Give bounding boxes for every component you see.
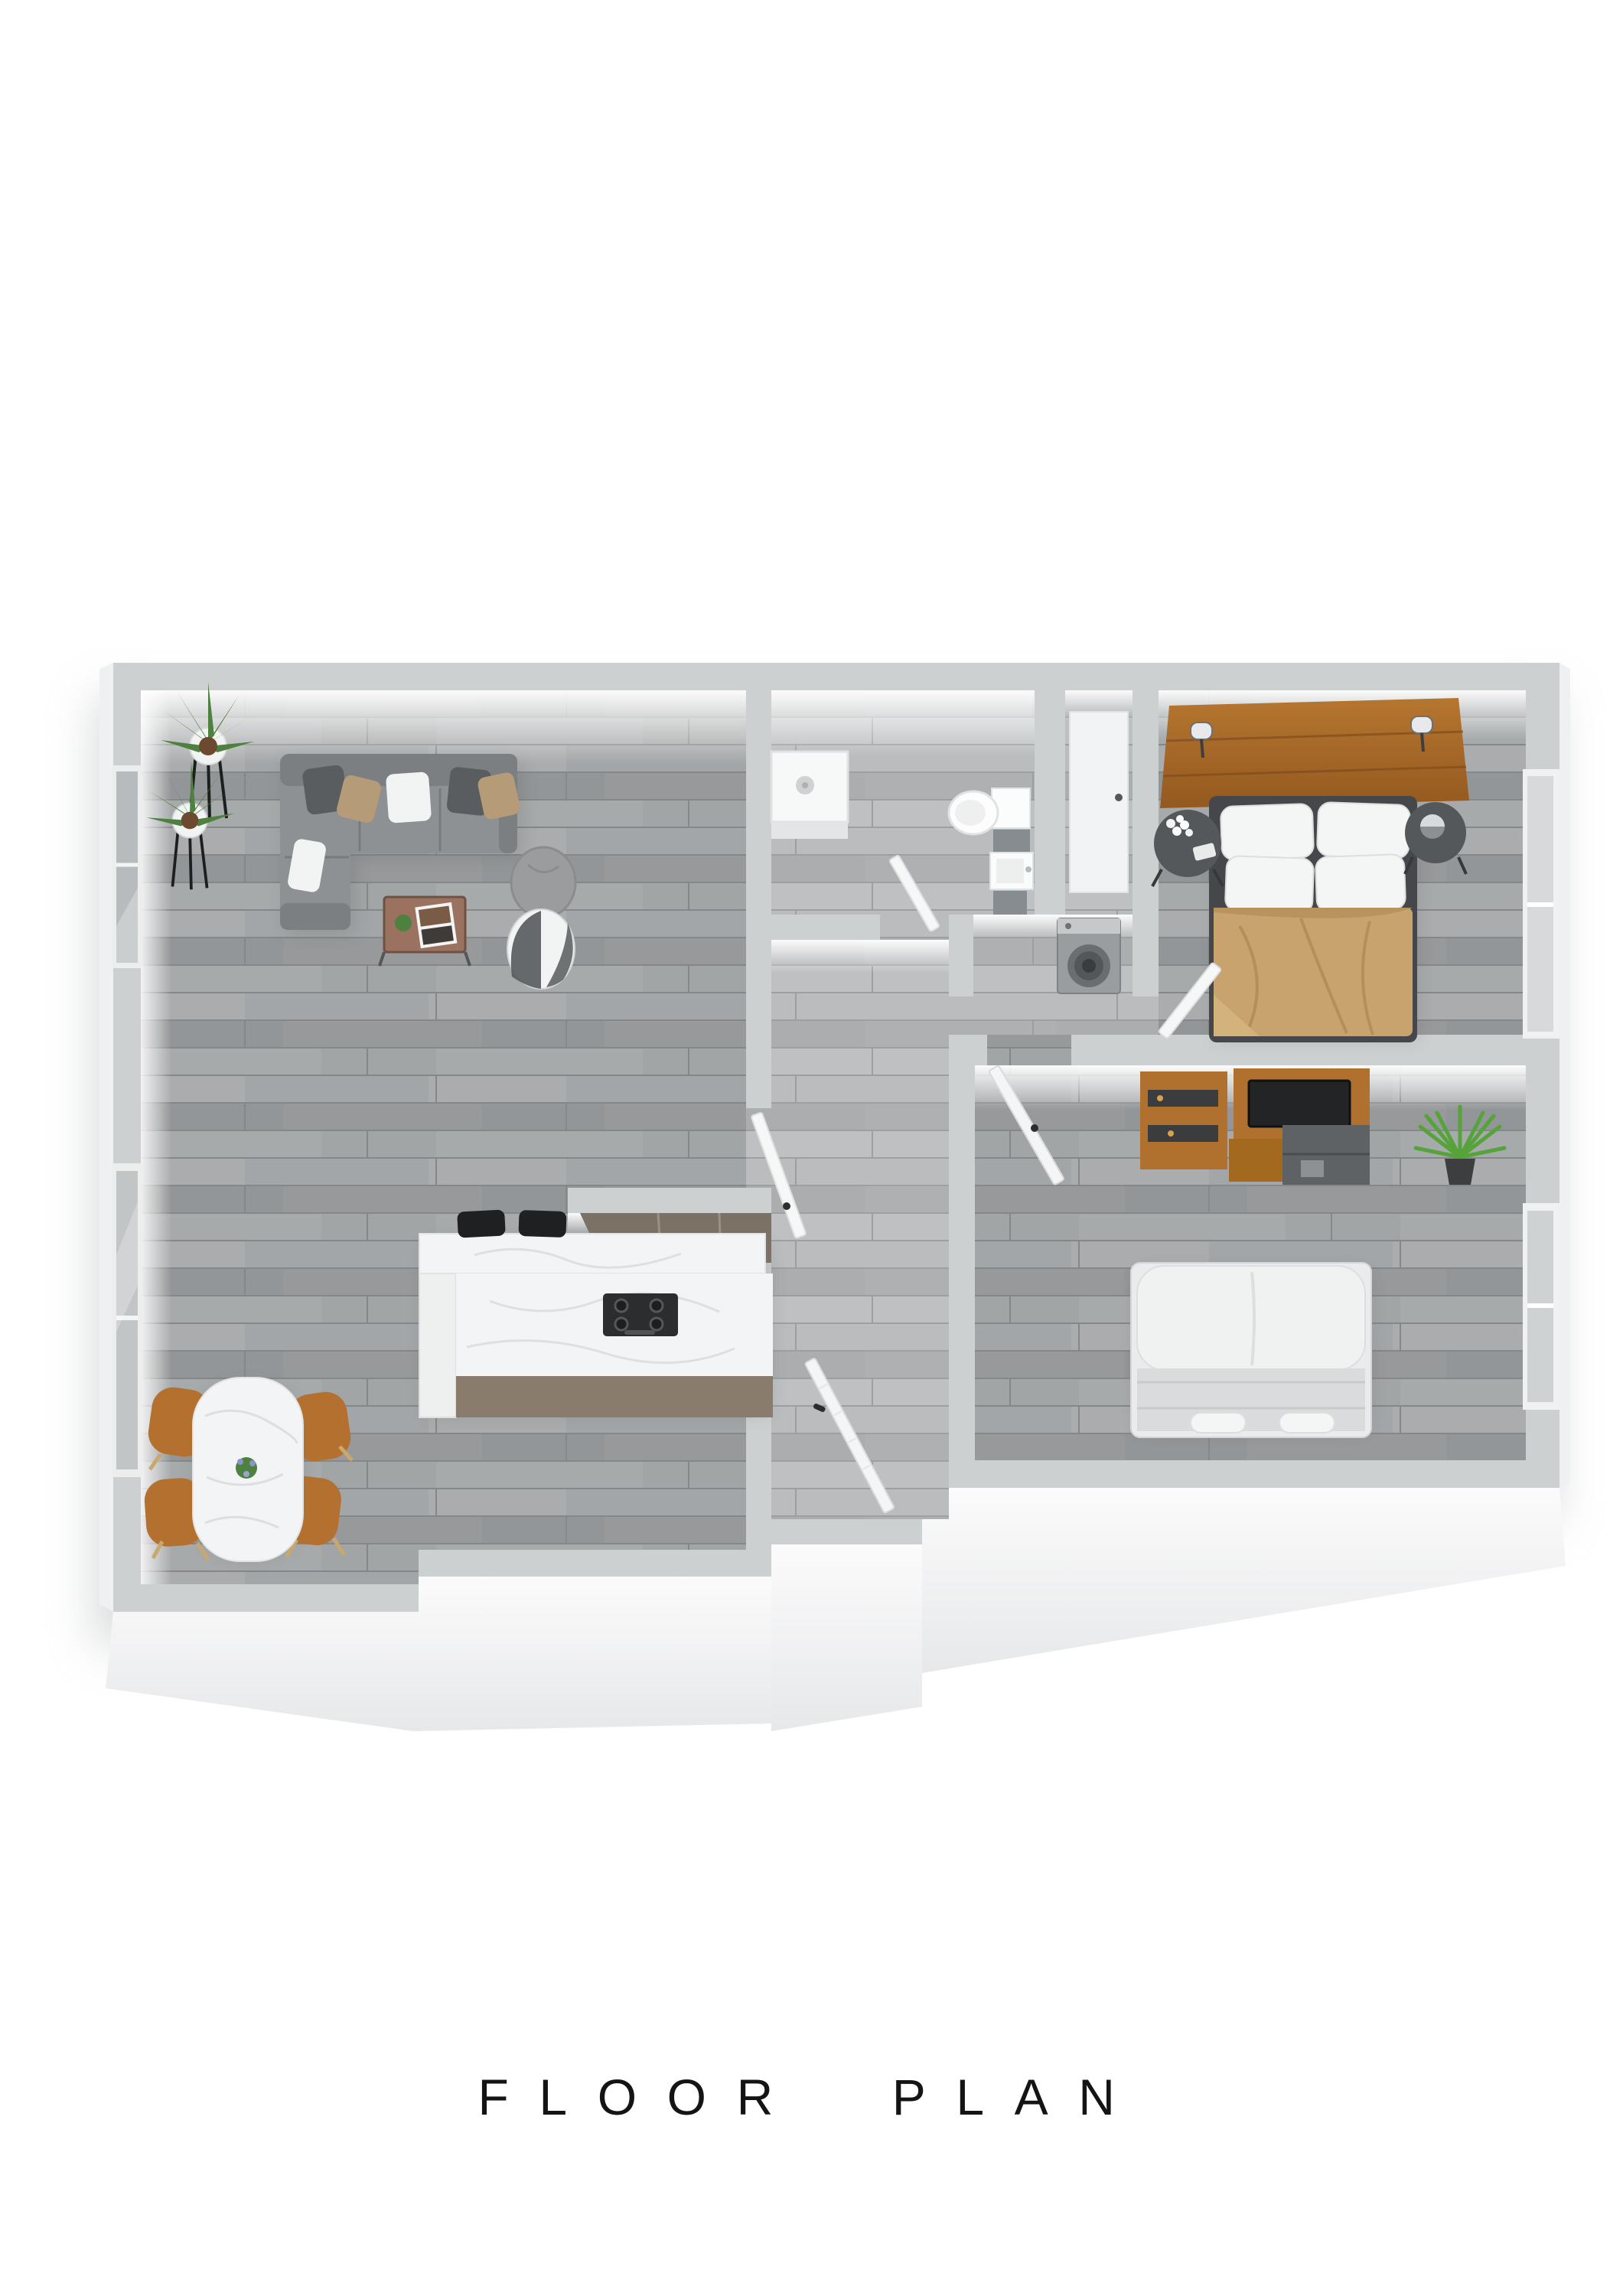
table-plant-icon bbox=[395, 915, 412, 931]
gas-cooktop bbox=[603, 1293, 678, 1336]
table-lamp-icon bbox=[1420, 814, 1445, 839]
cabinet-item-icon bbox=[1301, 1160, 1324, 1177]
bed-back-cushion bbox=[1137, 1266, 1365, 1370]
dining-table bbox=[193, 1378, 303, 1561]
master-window bbox=[1523, 769, 1559, 1039]
washer-knob-icon bbox=[1065, 923, 1071, 929]
master-door-gap bbox=[1133, 996, 1159, 1035]
shower bbox=[771, 752, 848, 839]
cooktop-knobs bbox=[624, 1330, 655, 1335]
television bbox=[1249, 1081, 1350, 1127]
plant-pot-icon bbox=[1445, 1159, 1475, 1185]
wood-headboard bbox=[1160, 698, 1469, 808]
shelf-item-icon bbox=[1168, 1130, 1174, 1137]
kitchen bbox=[419, 1209, 773, 1417]
floor-plan-rendering bbox=[0, 0, 1623, 2296]
tan-duvet bbox=[1214, 908, 1413, 1036]
shower-curb bbox=[771, 822, 848, 839]
beanbag bbox=[507, 909, 575, 989]
toilet bbox=[949, 788, 1030, 834]
floor-plan-page: FLOOR PLAN bbox=[0, 0, 1623, 2296]
kitchen-island bbox=[419, 1234, 773, 1417]
kitchen-wall bbox=[568, 1188, 771, 1213]
door-handle-icon bbox=[783, 1202, 790, 1210]
door-handle-icon bbox=[1115, 794, 1123, 801]
faucet-icon bbox=[1025, 866, 1031, 872]
pouf bbox=[511, 847, 575, 918]
page-title: FLOOR PLAN bbox=[0, 2068, 1623, 2126]
laundry-closet bbox=[1058, 918, 1120, 993]
tiled-ledge bbox=[993, 891, 1027, 915]
magazine bbox=[415, 902, 457, 948]
hallway-branch-floor bbox=[949, 996, 1159, 1035]
door-handle-icon bbox=[1031, 1124, 1038, 1132]
master-bed bbox=[1209, 796, 1417, 1042]
hall-closet-door bbox=[1070, 712, 1128, 892]
sink-vanity bbox=[990, 853, 1033, 889]
bedroom2-door-gap bbox=[987, 1035, 1071, 1065]
living-window-lower bbox=[112, 1163, 142, 1477]
shelf-item-icon bbox=[1157, 1095, 1163, 1101]
flower-centerpiece bbox=[236, 1457, 257, 1479]
tv-wall-unit bbox=[1140, 1068, 1370, 1185]
bedroom2-window bbox=[1523, 1203, 1559, 1410]
living-window-upper bbox=[112, 765, 142, 968]
washing-machine bbox=[1058, 918, 1120, 993]
bedroom2-bed bbox=[1131, 1263, 1371, 1437]
tiled-ledge bbox=[993, 830, 1030, 853]
drain-dot bbox=[802, 782, 808, 788]
